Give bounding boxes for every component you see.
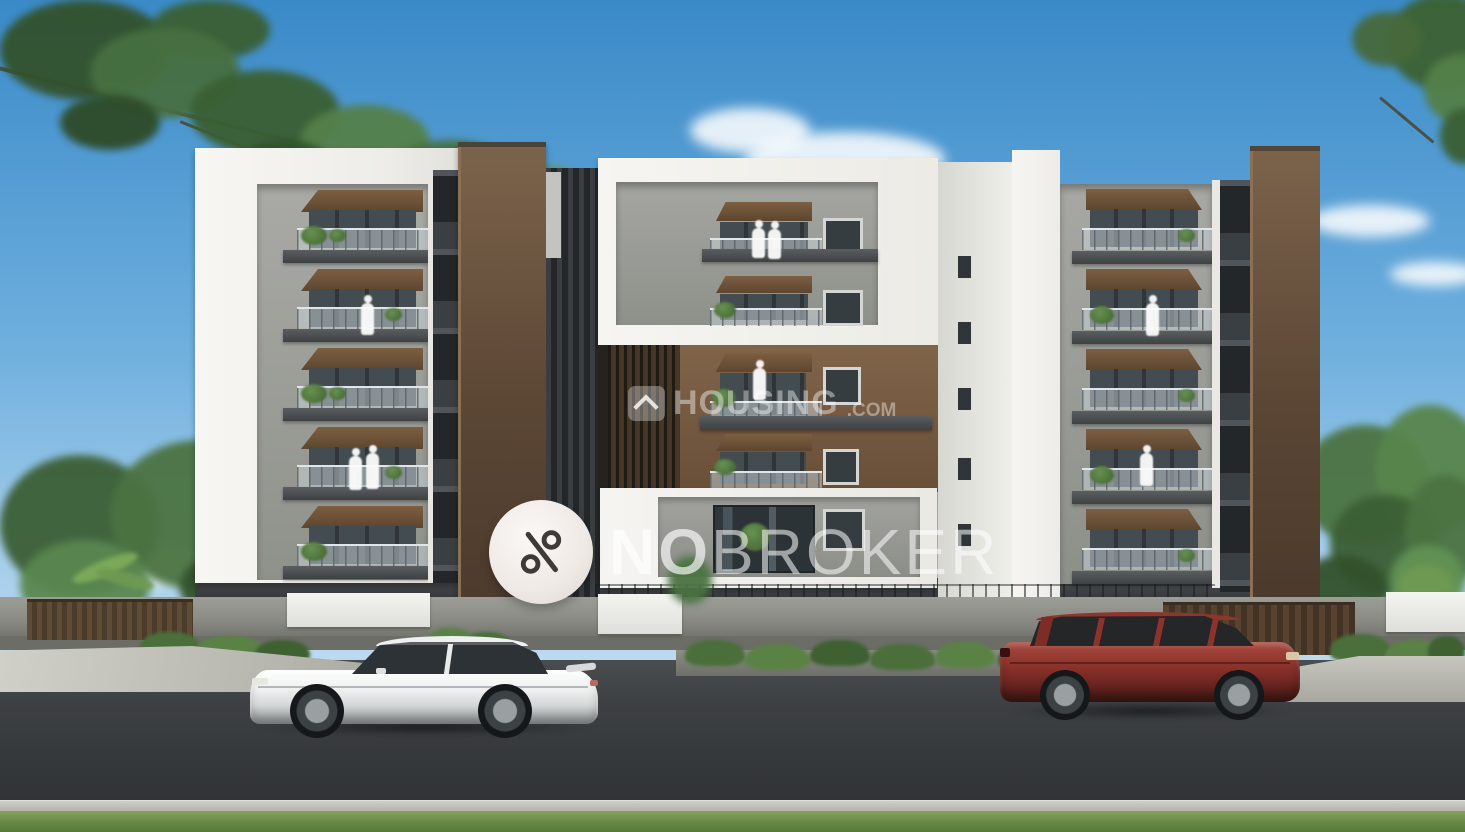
red-suv-car: [1000, 612, 1300, 726]
window: [958, 388, 971, 410]
balcony-canopy: [716, 276, 812, 293]
floor-slab: [1072, 571, 1212, 584]
balcony-plant: [1178, 229, 1195, 242]
balcony-canopy: [1086, 269, 1202, 290]
floor-slab: [283, 408, 428, 421]
right-tower-white-wing: [1012, 150, 1060, 598]
balcony-plant: [385, 308, 402, 321]
floor-slab: [1072, 251, 1212, 264]
person-silhouette: [752, 228, 765, 258]
nobroker-watermark: NOBROKER: [489, 500, 999, 604]
balcony-floor: [1060, 424, 1212, 504]
white-sedan-car: [250, 634, 598, 740]
house-chevron-icon: [628, 386, 665, 421]
window: [823, 290, 863, 326]
nobroker-watermark-text: NOBROKER: [609, 515, 999, 589]
left-tower-facade: [257, 184, 428, 580]
balcony-plant: [1178, 549, 1195, 562]
balcony-floor: [1060, 344, 1212, 424]
housing-watermark: HOUSING .COM: [628, 383, 896, 423]
shrub: [935, 642, 995, 668]
car-wheel: [478, 684, 532, 738]
car-taillight: [1000, 648, 1010, 657]
balcony-plant: [301, 542, 327, 561]
balcony-plant: [1090, 306, 1114, 324]
right-tower-facade: [1060, 184, 1212, 584]
car-windows: [1030, 616, 1254, 646]
building-right-tower: [1012, 146, 1320, 598]
balcony-floor: [257, 500, 428, 579]
nobroker-text-no: NO: [609, 516, 711, 588]
balcony-canopy: [301, 427, 423, 449]
balcony-plant: [301, 226, 327, 245]
balcony-floor: [616, 182, 878, 325]
balcony-canopy: [301, 269, 423, 291]
balcony-canopy: [301, 506, 423, 528]
car-taillight: [590, 680, 598, 686]
building-left-tower: [195, 148, 460, 583]
balcony-canopy: [1086, 349, 1202, 370]
person-silhouette: [366, 453, 379, 489]
balcony-canopy: [716, 434, 812, 451]
housing-watermark-suffix: .COM: [847, 401, 897, 420]
nobroker-text-broker: BROKER: [711, 516, 999, 588]
shrub: [870, 644, 935, 670]
car-wheel: [1214, 670, 1264, 720]
floor-slab: [1072, 411, 1212, 424]
housing-watermark-text: HOUSING: [673, 386, 839, 420]
foliage-blob: [1352, 12, 1422, 66]
window: [958, 256, 971, 278]
car-headlight: [252, 678, 268, 685]
center-upper-facade: [616, 182, 878, 325]
balcony-canopy: [301, 190, 423, 212]
foliage-blob: [60, 95, 160, 150]
window: [823, 449, 859, 485]
compound-wall-white-section: [1386, 592, 1465, 632]
balcony-plant: [714, 459, 736, 475]
compound-wall-white-section: [287, 593, 430, 627]
person-silhouette: [768, 229, 781, 259]
floor-slab: [283, 329, 428, 342]
right-tower-recess-windows: [1220, 180, 1252, 592]
tree-branch: [1379, 96, 1435, 143]
balcony-railing: [297, 465, 428, 487]
window: [958, 322, 971, 344]
car-wheel: [1040, 670, 1090, 720]
car-headlight: [1286, 652, 1299, 660]
floor-slab: [283, 250, 428, 263]
balcony-floor: [257, 342, 428, 421]
person-silhouette: [1146, 303, 1159, 336]
shrub: [810, 640, 870, 666]
balcony-floor: [257, 184, 428, 263]
balcony-canopy: [301, 348, 423, 370]
balcony-plant: [1178, 389, 1195, 402]
facade-highlight: [546, 172, 561, 258]
floor-slab: [283, 566, 428, 579]
person-silhouette: [349, 456, 362, 490]
balcony-floor: [1060, 184, 1212, 264]
balcony-plant: [301, 384, 327, 403]
balcony-plant: [714, 302, 736, 318]
apartment-building-rendering: HOUSING .COM NOBROKER: [0, 0, 1465, 832]
balcony-plant: [329, 229, 346, 242]
facade-divider: [1212, 180, 1220, 588]
balcony-plant: [329, 387, 346, 400]
balcony-canopy: [1086, 509, 1202, 530]
shrub: [685, 640, 745, 666]
person-silhouette: [1140, 453, 1153, 486]
floor-slab: [1072, 331, 1212, 344]
floor-slab: [1072, 491, 1212, 504]
balcony-floor: [257, 421, 428, 500]
shrub: [745, 644, 810, 670]
balcony-canopy: [1086, 189, 1202, 210]
balcony-floor: [1060, 504, 1212, 584]
car-mirror: [376, 668, 386, 674]
car-wheel: [290, 684, 344, 738]
left-tower-recess-windows: [433, 170, 460, 583]
person-silhouette: [361, 303, 374, 335]
percent-icon: [489, 500, 593, 604]
balcony-floor: [1060, 264, 1212, 344]
brown-core-right: [1250, 146, 1320, 611]
balcony-plant: [1090, 466, 1114, 484]
grass-verge: [0, 811, 1465, 832]
balcony-plant: [385, 466, 402, 479]
balcony-floor: [257, 263, 428, 342]
window: [958, 458, 971, 480]
car-beltline: [1010, 662, 1290, 664]
